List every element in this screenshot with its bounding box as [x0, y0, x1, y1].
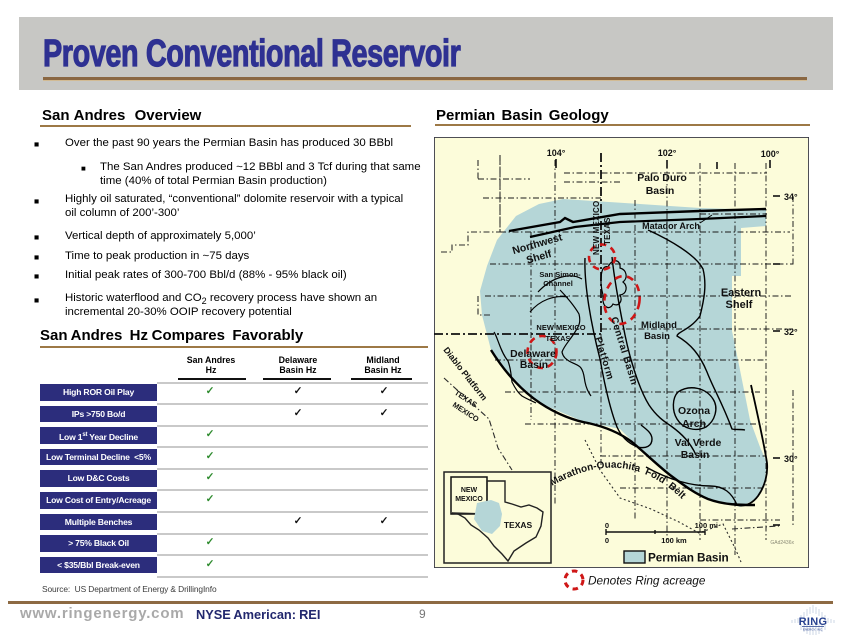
svg-text:Delaware: Delaware — [510, 349, 556, 360]
svg-text:NEW MEXICO: NEW MEXICO — [536, 323, 585, 332]
svg-text:Palo Duro: Palo Duro — [637, 172, 687, 184]
svg-text:NEW: NEW — [461, 487, 478, 494]
svg-text:Basin: Basin — [644, 331, 670, 342]
svg-text:ENERGY, INC.: ENERGY, INC. — [803, 628, 823, 632]
svg-text:Channel: Channel — [543, 279, 573, 288]
svg-text:0: 0 — [605, 536, 609, 545]
svg-text:GAd2436x: GAd2436x — [770, 540, 794, 546]
svg-text:Midland: Midland — [641, 320, 677, 331]
svg-text:Basin: Basin — [681, 449, 710, 461]
svg-text:Denotes Ring acreage: Denotes Ring acreage — [588, 574, 706, 588]
svg-text:30°: 30° — [784, 454, 798, 464]
svg-text:Permian Basin: Permian Basin — [648, 551, 729, 565]
svg-text:Matador Arch: Matador Arch — [642, 221, 700, 231]
svg-text:Basin: Basin — [646, 185, 675, 197]
svg-text:Eastern: Eastern — [721, 287, 762, 299]
svg-text:TEXAS: TEXAS — [504, 520, 533, 530]
svg-text:100 mi: 100 mi — [695, 521, 718, 530]
svg-text:100°: 100° — [761, 149, 780, 159]
svg-text:San Simon-: San Simon- — [539, 270, 581, 279]
svg-text:Shelf: Shelf — [726, 299, 753, 311]
svg-text:32°: 32° — [784, 327, 798, 337]
svg-text:NEW MEXICO: NEW MEXICO — [592, 201, 601, 255]
svg-text:Basin: Basin — [520, 360, 548, 371]
svg-text:104°: 104° — [547, 148, 566, 158]
svg-text:TEXAS: TEXAS — [603, 217, 612, 245]
svg-text:Ozona: Ozona — [678, 405, 710, 417]
svg-text:Arch: Arch — [682, 418, 706, 430]
svg-text:0: 0 — [605, 521, 609, 530]
svg-text:MEXICO: MEXICO — [455, 496, 483, 503]
svg-text:102°: 102° — [658, 148, 677, 158]
svg-text:34°: 34° — [784, 192, 798, 202]
svg-text:100 km: 100 km — [661, 536, 687, 545]
svg-text:Val Verde: Val Verde — [675, 437, 722, 449]
svg-text:TEXAS: TEXAS — [545, 334, 570, 343]
